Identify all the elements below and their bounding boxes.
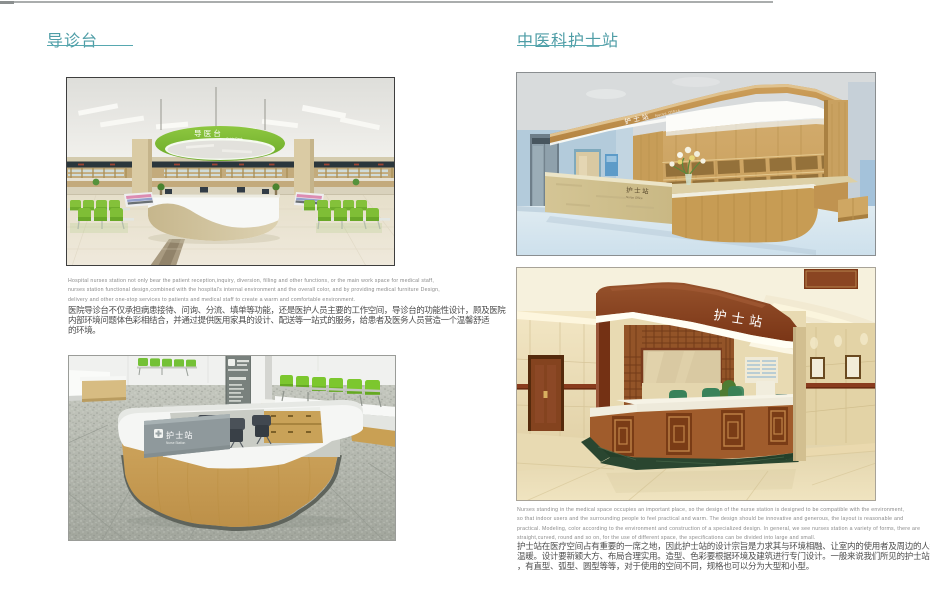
svg-text:导医台: 导医台 bbox=[194, 128, 223, 138]
svg-text:Guide Desk: Guide Desk bbox=[226, 137, 243, 141]
svg-text:护士站: 护士站 bbox=[166, 430, 194, 440]
svg-text:Nurse Station: Nurse Station bbox=[166, 441, 186, 445]
